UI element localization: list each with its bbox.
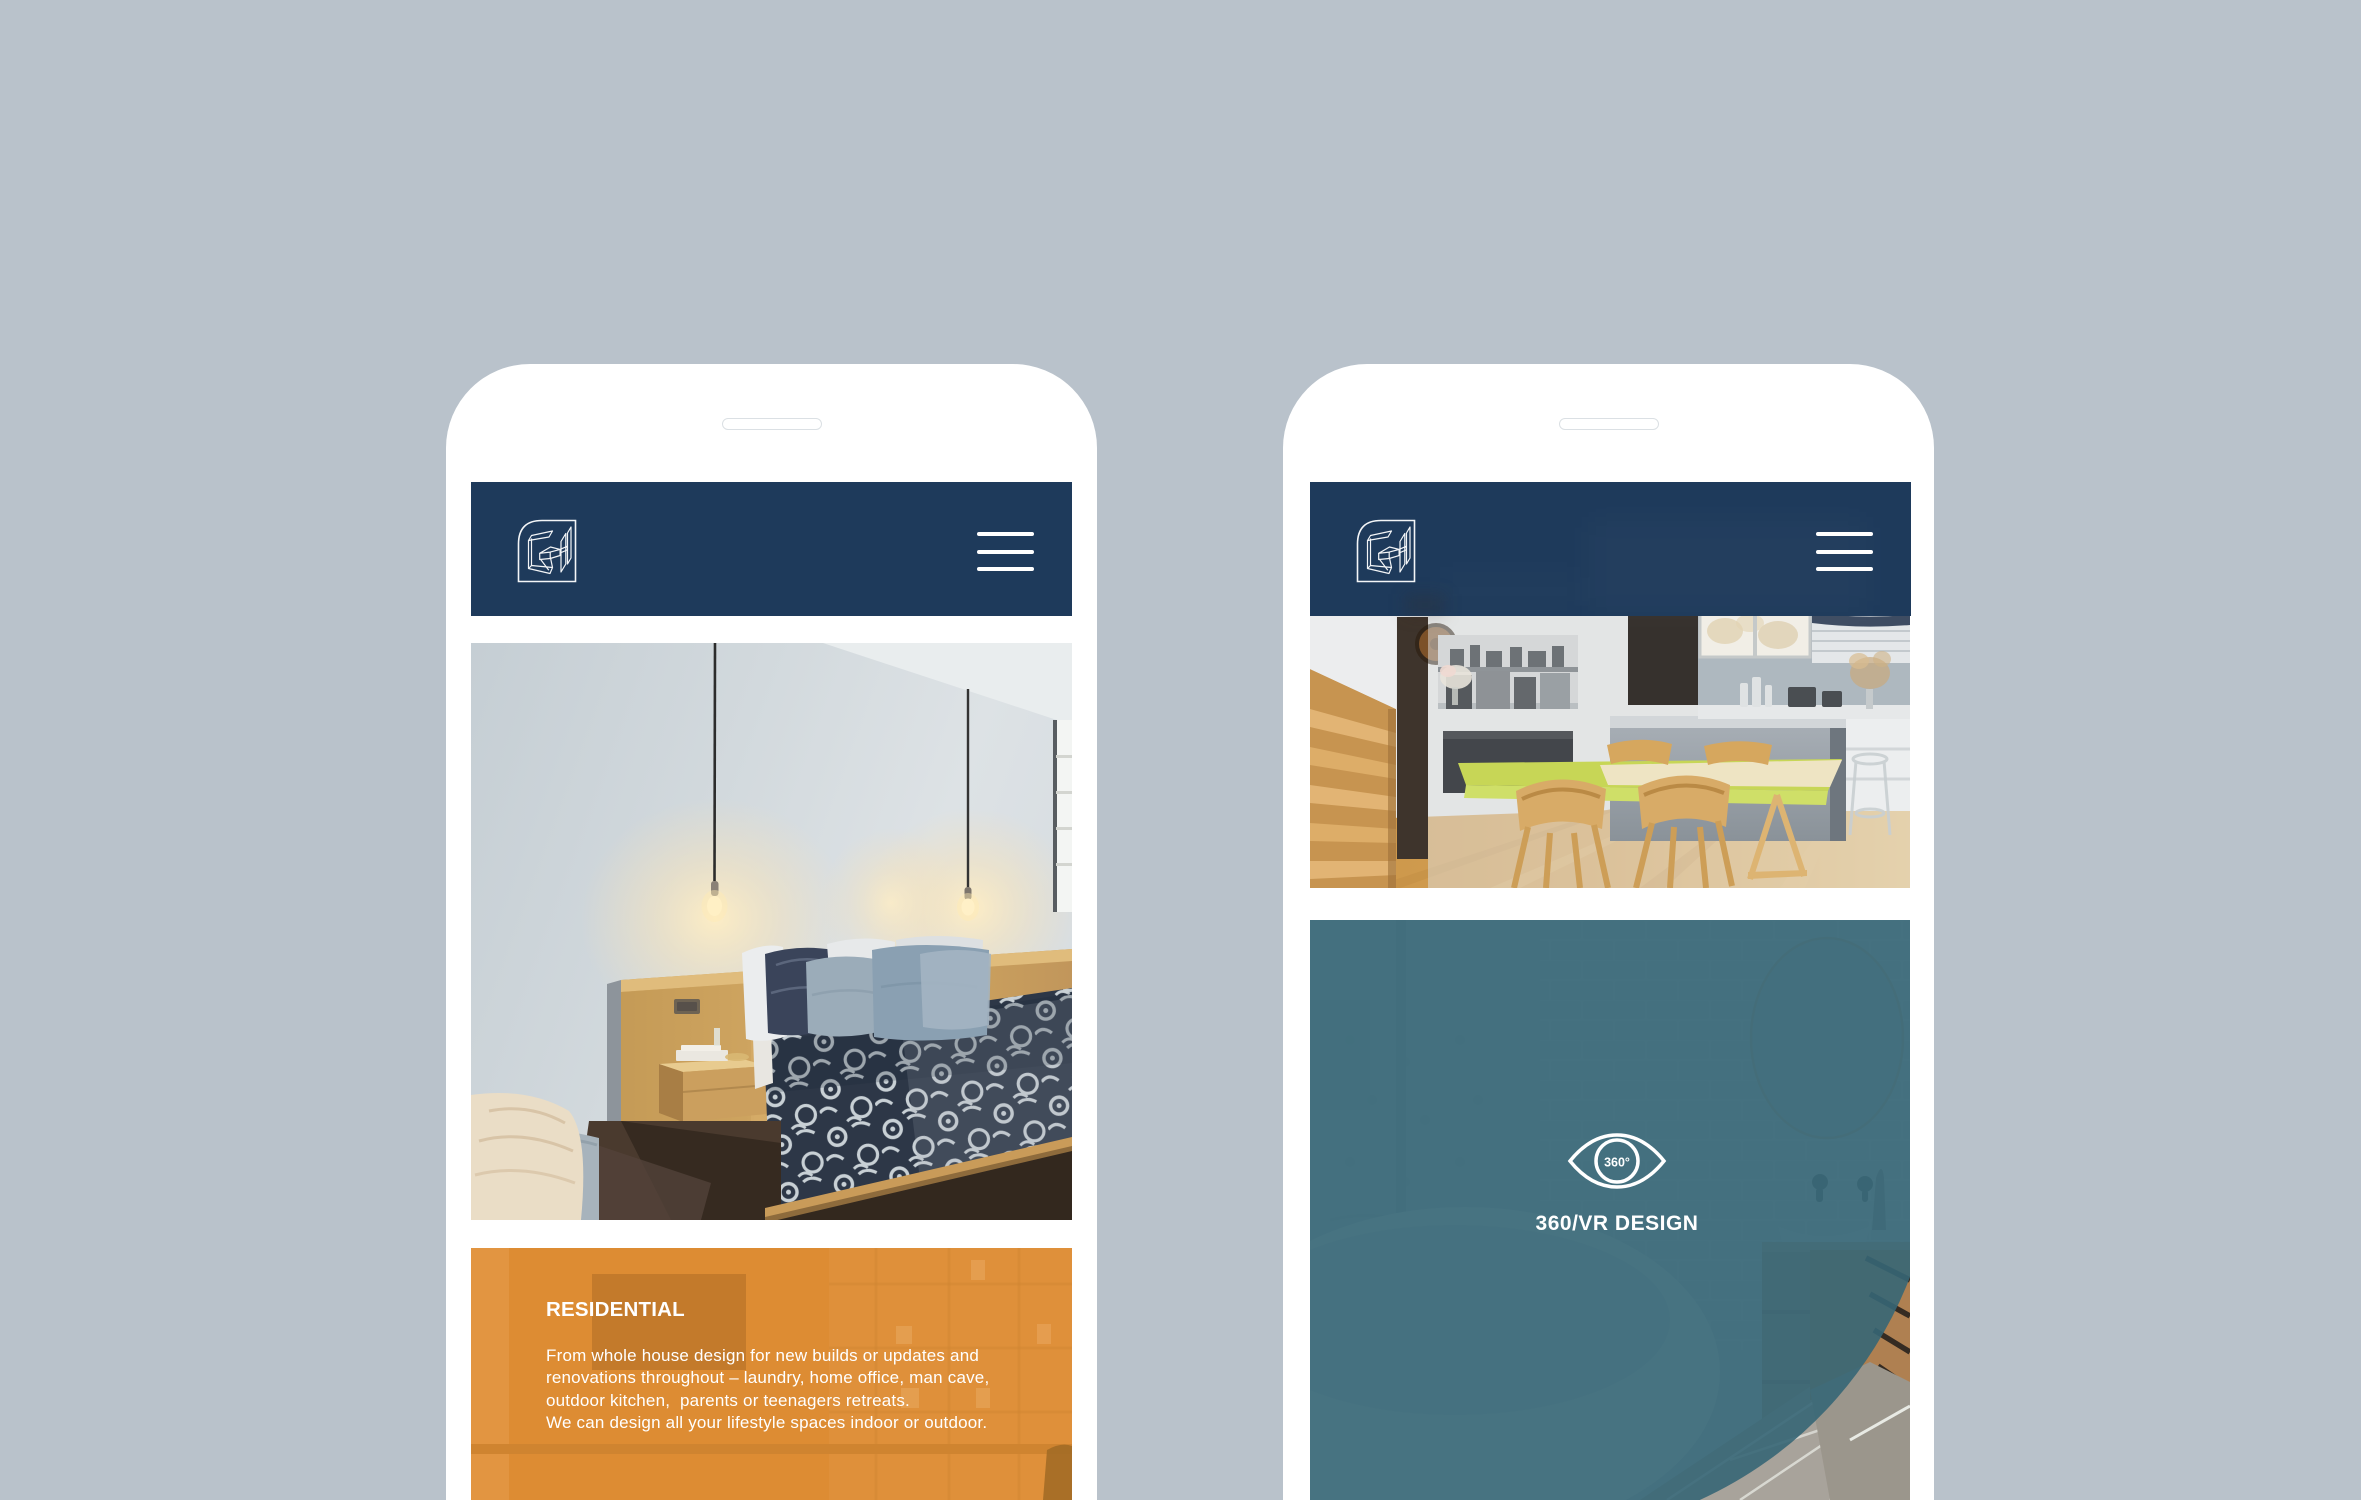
svg-text:360°: 360°	[1604, 1156, 1630, 1170]
